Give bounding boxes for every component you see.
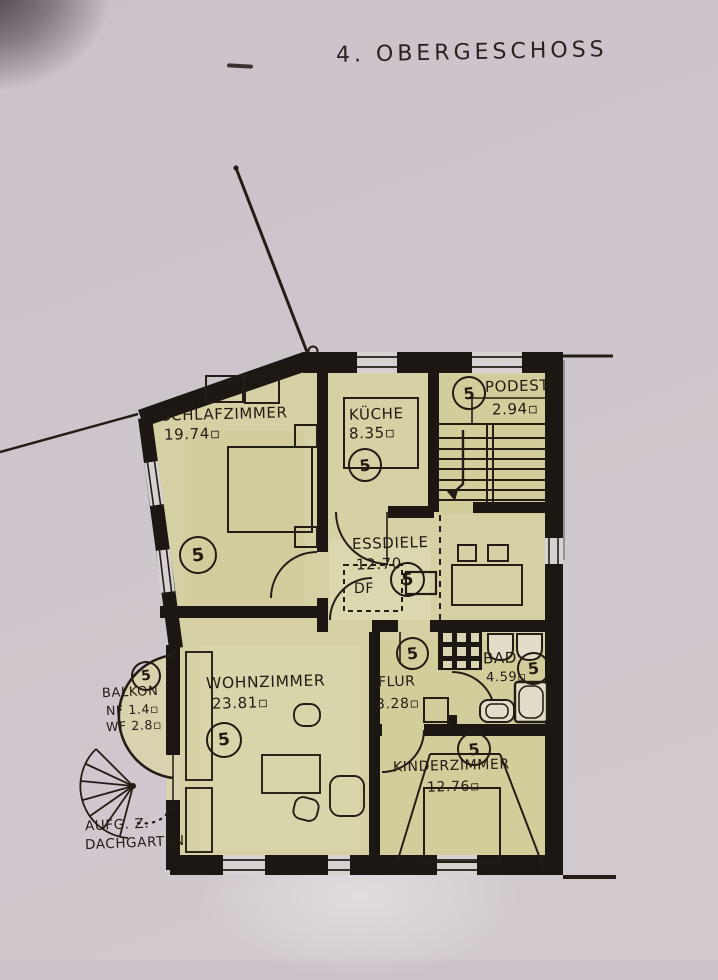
window-top-podest — [472, 352, 522, 373]
window-right — [545, 538, 563, 564]
room-label-kinderzimmer: KINDERZIMMER — [393, 757, 510, 775]
scanned-floorplan-page: 4. OBERGESCHOSS — [0, 0, 718, 960]
room-area-kinderzimmer: 12.76▫ — [427, 779, 481, 795]
room-area-podest: 2.94▫ — [492, 401, 539, 418]
window-left-2 — [160, 550, 172, 593]
window-bottom-1 — [223, 855, 265, 875]
roof-access-note-line1: AUFG. Z. — [85, 817, 150, 834]
room-label-balkon: BALKON — [102, 685, 159, 701]
room-area-wohnzimmer: 23.81▫ — [212, 695, 269, 712]
window-bottom-3 — [437, 855, 477, 875]
balkon-wf-area: WF 2.8▫ — [106, 718, 163, 734]
window-bottom-2 — [328, 855, 350, 875]
room-label-bad: BAD — [483, 651, 517, 668]
room-label-podest: PODEST — [485, 378, 550, 395]
window-top-kueche — [357, 352, 397, 373]
skylight-label-df: DF — [354, 582, 374, 597]
room-label-wohnzimmer: WOHNZIMMER — [206, 672, 326, 691]
room-label-schlafzimmer: SCHLAFZIMMER — [161, 405, 288, 424]
room-label-kueche: KÜCHE — [349, 406, 404, 423]
room-area-schlafzimmer: 19.74▫ — [164, 426, 221, 443]
chimney-shaft — [438, 628, 482, 670]
window-left-1 — [148, 462, 161, 506]
room-label-flur: FLUR — [378, 675, 416, 691]
room-area-flur: 3.28▫ — [376, 696, 420, 712]
room-area-kueche: 8.35▫ — [349, 425, 396, 442]
balkon-nf-area: NF 1.4▫ — [106, 702, 160, 717]
room-label-essdiele: ESSDIELE — [352, 535, 429, 553]
